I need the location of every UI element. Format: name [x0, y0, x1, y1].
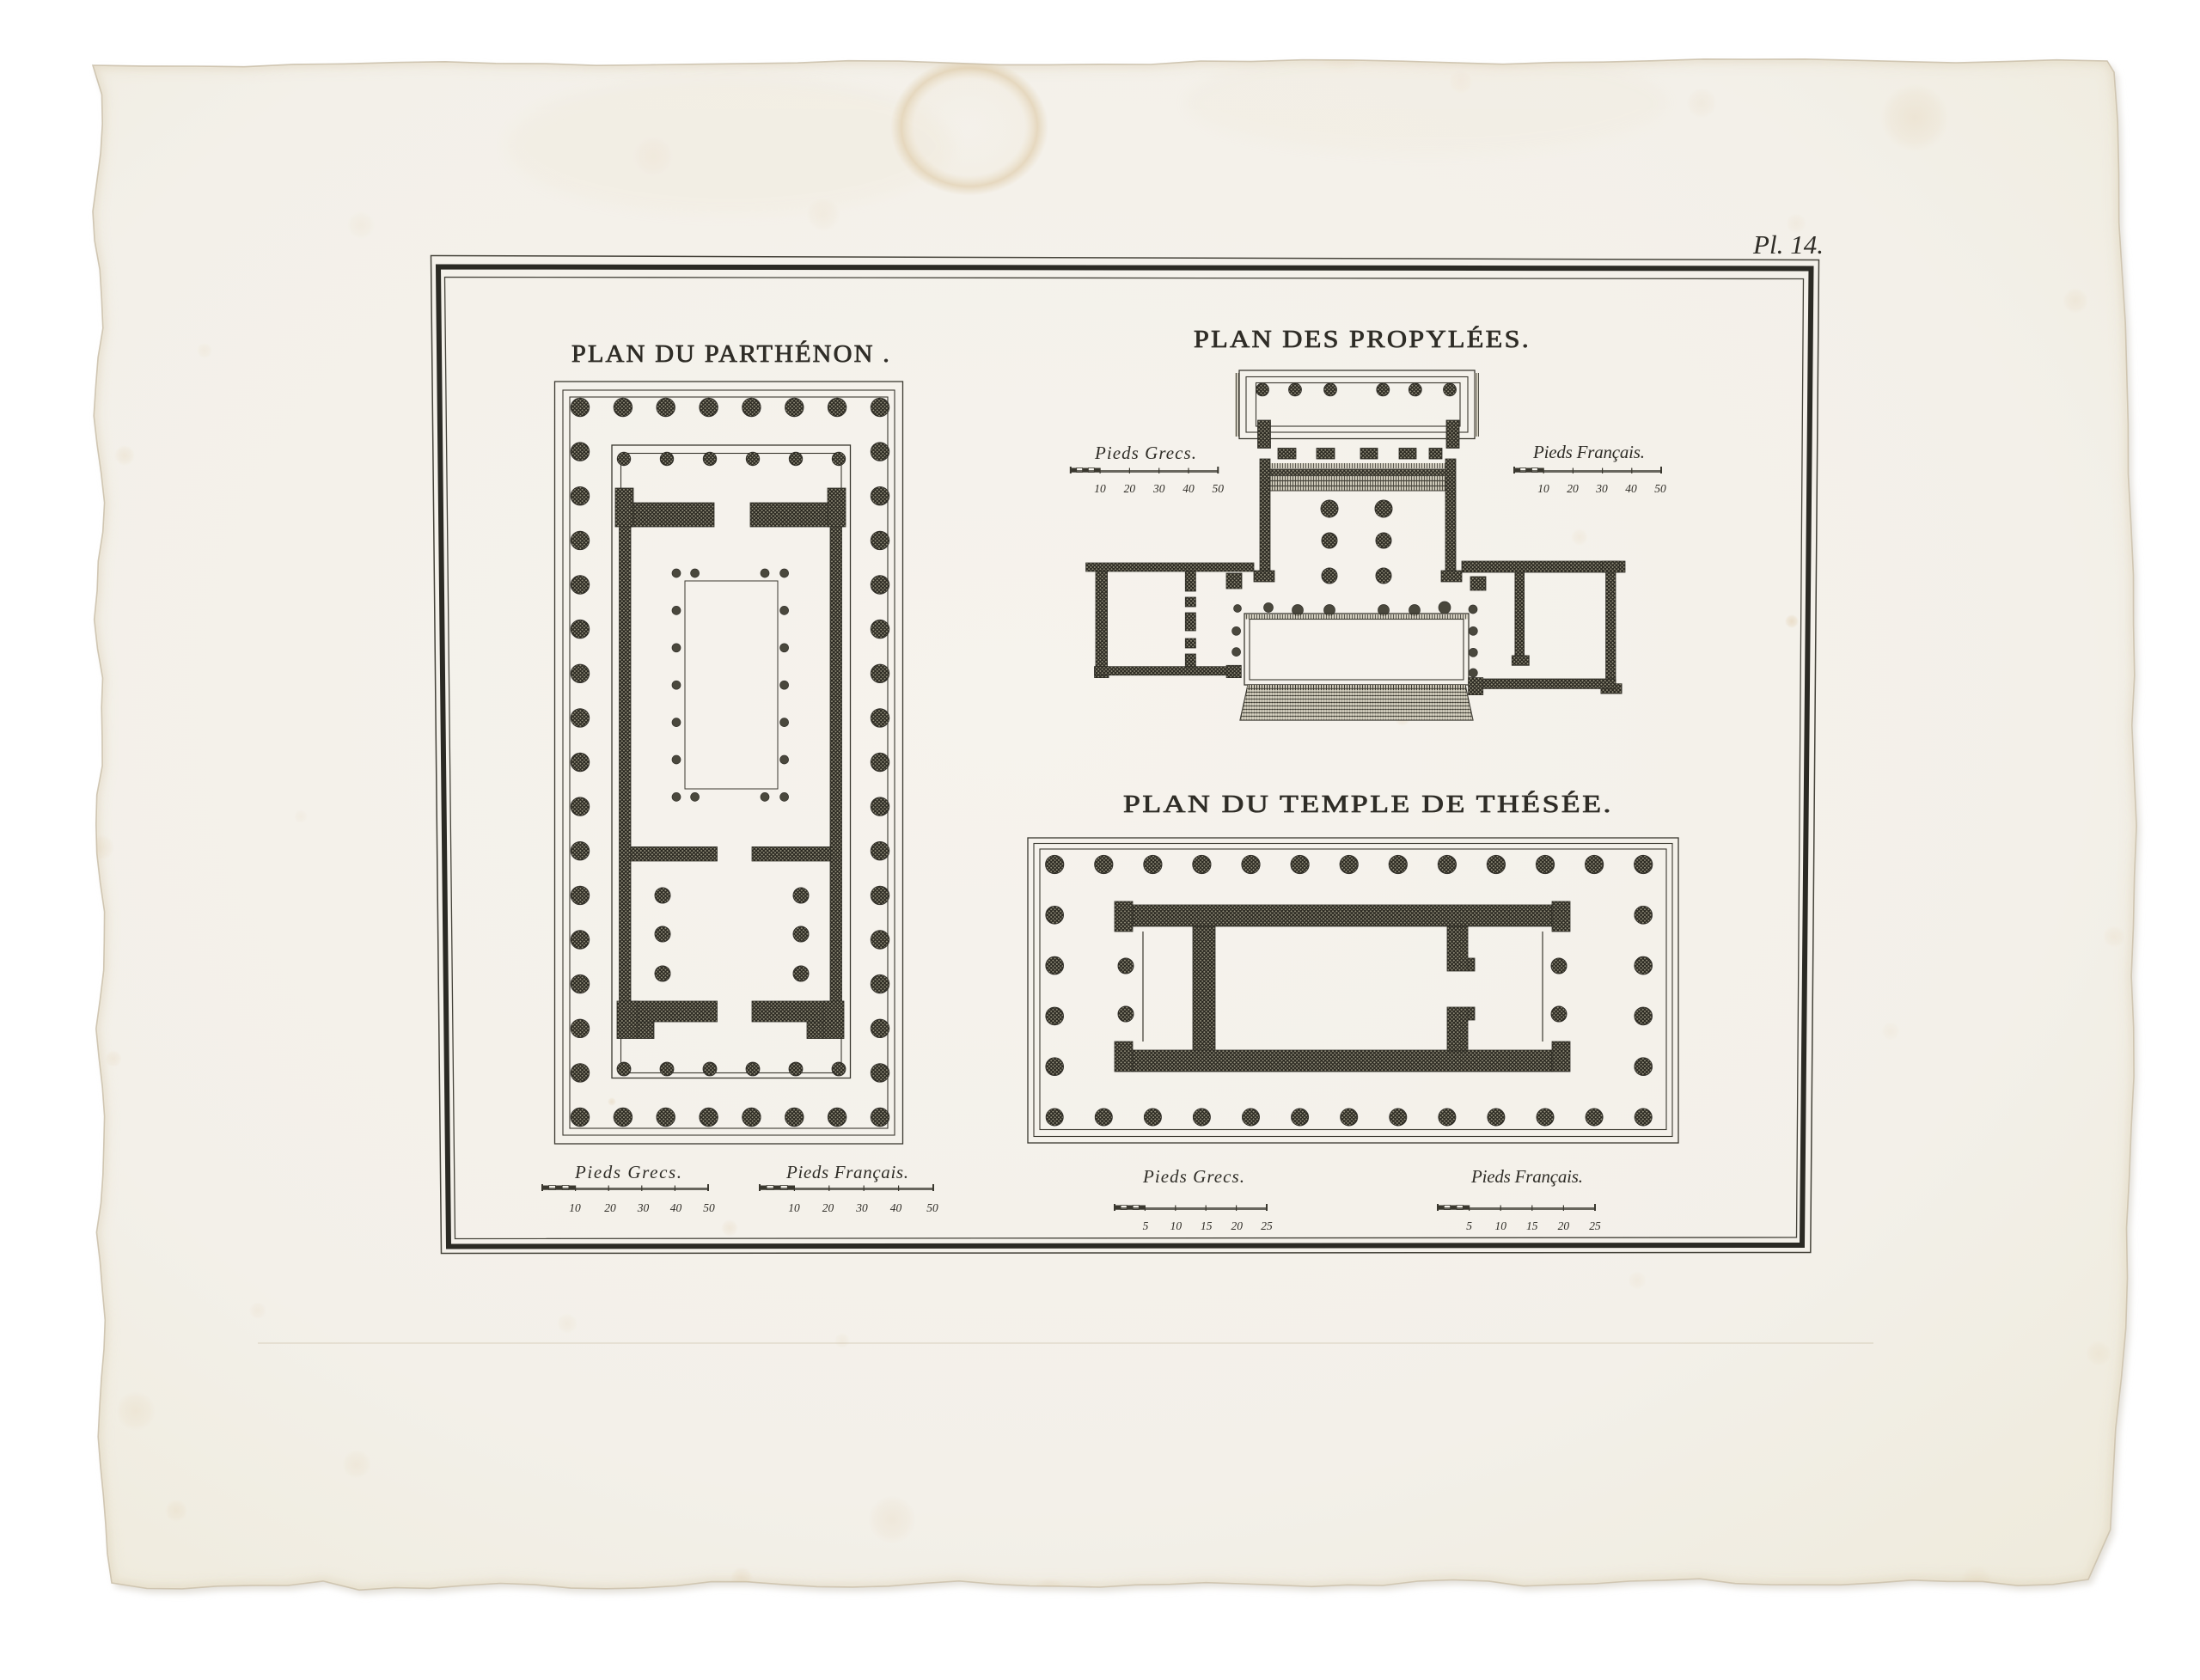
svg-text:10: 10: [1494, 1219, 1506, 1232]
svg-text:Pieds Français.: Pieds Français.: [1532, 442, 1645, 462]
svg-text:30: 30: [637, 1201, 650, 1214]
svg-text:40: 40: [1625, 482, 1637, 495]
svg-text:10: 10: [1170, 1219, 1182, 1232]
svg-text:50: 50: [703, 1201, 715, 1214]
svg-text:5: 5: [1466, 1219, 1472, 1232]
svg-text:10: 10: [1094, 482, 1106, 495]
svg-text:10: 10: [1537, 482, 1549, 495]
svg-text:20: 20: [1124, 482, 1136, 495]
svg-text:Pieds Français.: Pieds Français.: [785, 1162, 908, 1182]
svg-text:Pieds Grecs.: Pieds Grecs.: [1094, 443, 1196, 463]
svg-text:Pieds Grecs.: Pieds Grecs.: [1142, 1166, 1244, 1187]
svg-text:40: 40: [1182, 482, 1195, 495]
svg-text:Pl. 14.: Pl. 14.: [1752, 229, 1824, 260]
svg-text:Pieds Grecs.: Pieds Grecs.: [574, 1162, 681, 1182]
svg-text:20: 20: [1231, 1219, 1243, 1232]
svg-text:10: 10: [569, 1201, 581, 1214]
svg-text:30: 30: [1152, 482, 1165, 495]
svg-text:50: 50: [1213, 482, 1225, 495]
svg-text:5: 5: [1143, 1219, 1149, 1232]
svg-text:30: 30: [1595, 482, 1608, 495]
svg-text:50: 50: [926, 1201, 938, 1214]
svg-text:15: 15: [1526, 1219, 1538, 1232]
svg-text:40: 40: [890, 1201, 902, 1214]
svg-text:Pieds Français.: Pieds Français.: [1470, 1166, 1583, 1187]
svg-text:PLAN DES PROPYLÉES.: PLAN DES PROPYLÉES.: [1194, 325, 1531, 353]
svg-text:PLAN DU PARTHÉNON .: PLAN DU PARTHÉNON .: [571, 339, 891, 368]
svg-text:25: 25: [1589, 1219, 1601, 1232]
svg-text:20: 20: [1558, 1219, 1570, 1232]
svg-text:10: 10: [788, 1201, 800, 1214]
svg-text:30: 30: [855, 1201, 868, 1214]
svg-text:20: 20: [604, 1201, 616, 1214]
svg-text:20: 20: [822, 1201, 834, 1214]
svg-text:25: 25: [1261, 1219, 1273, 1232]
svg-text:15: 15: [1201, 1219, 1213, 1232]
svg-text:PLAN DU TEMPLE DE THÉSÉE.: PLAN DU TEMPLE DE THÉSÉE.: [1123, 790, 1613, 818]
svg-text:50: 50: [1654, 482, 1666, 495]
svg-text:20: 20: [1567, 482, 1579, 495]
svg-text:40: 40: [670, 1201, 682, 1214]
